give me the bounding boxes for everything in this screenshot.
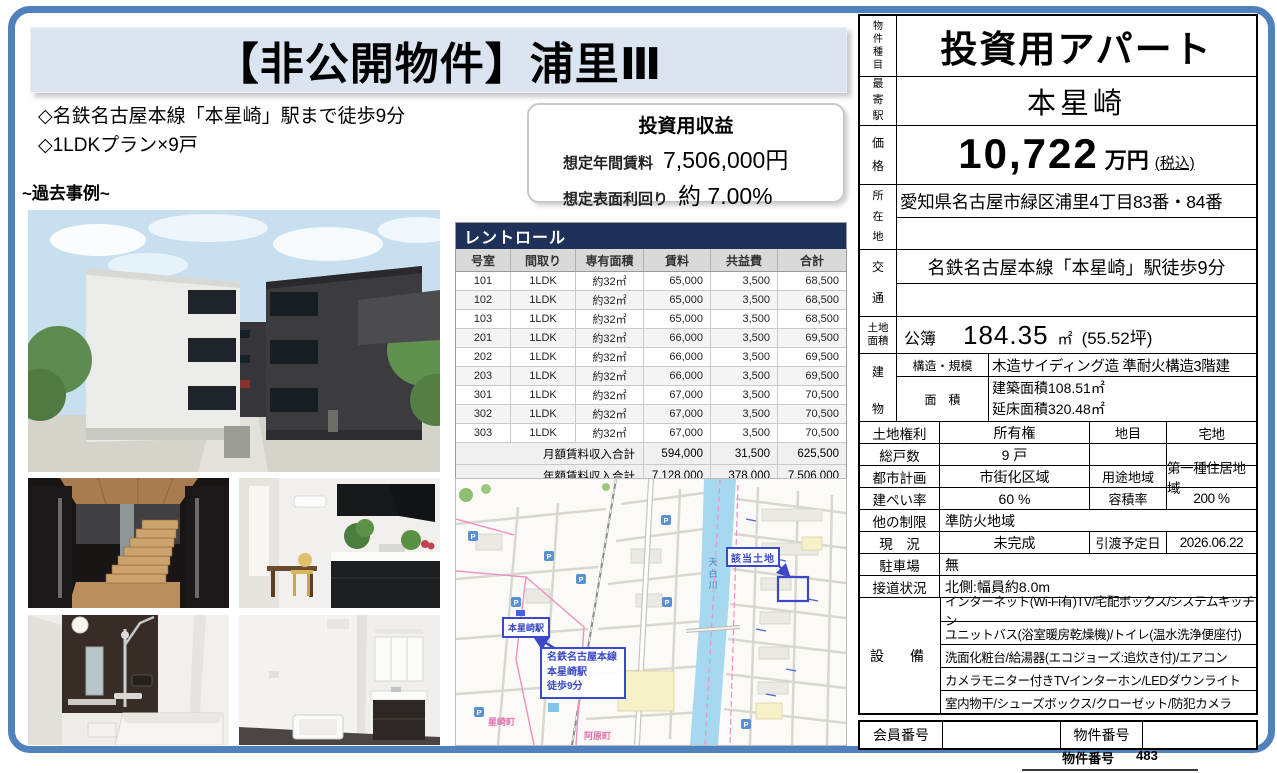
parking-icon: P xyxy=(576,574,586,584)
rent-roll-row: 302 1LDK 約32㎡ 67,000 3,500 70,500 xyxy=(456,405,846,424)
property-number-label: 物件番号 xyxy=(1060,722,1142,748)
building-row: 建物 構造・規模 木造サイディング造 準耐火構造3階建 面 積 建築面積108.… xyxy=(860,353,1256,421)
rent-roll-rows: 101 1LDK 約32㎡ 65,000 3,500 68,500 102 1L… xyxy=(456,272,846,443)
parking-icon: P xyxy=(741,719,751,729)
past-example-label: ~過去事例~ xyxy=(22,179,110,204)
rent-roll-table: レントロール 号室 間取り 専有面積 賃料 共益費 合計 101 1LDK 約3… xyxy=(455,222,847,487)
route-line-1: 名鉄名古屋本線 xyxy=(547,651,617,666)
land-rights-row: 土地権利 所有権 地目 宅地 xyxy=(860,421,1256,443)
rent-roll-row: 203 1LDK 約32㎡ 66,000 3,500 69,500 xyxy=(456,367,846,386)
yield-value: 約 7.00% xyxy=(678,177,773,211)
location-row: 所在地 愛知県名古屋市緑区浦里4丁目83番・84番 xyxy=(860,184,1256,249)
building-label: 建物 xyxy=(872,354,884,428)
rent-roll-row: 102 1LDK 約32㎡ 65,000 3,500 68,500 xyxy=(456,291,846,310)
price-unit: 万円 xyxy=(1105,143,1149,175)
equipment-line: カメラモニター付きTVインターホン/LEDダウンライト xyxy=(941,667,1256,690)
member-number-row: 会員番号 物件番号 xyxy=(858,720,1258,750)
location-map: 本星崎駅 該当土地 名鉄名古屋本線 本星崎駅 徒歩9分 天白川 星崎町 阿原町 … xyxy=(455,478,847,746)
feature-bullets: ◇名鉄名古屋本線「本星崎」駅まで徒歩9分 ◇1LDKプラン×9戸 xyxy=(38,102,405,161)
annual-rent-label: 想定年間賃料 xyxy=(563,152,653,173)
land-area-value: 184.35 xyxy=(963,320,1049,351)
transport-blank xyxy=(897,284,1256,316)
bathroom-photo xyxy=(28,615,229,745)
footer-property-number-value: 483 xyxy=(1136,748,1158,767)
title-banner: 【非公開物件】浦里Ⅲ xyxy=(30,27,847,93)
equipment-label: 設 備 xyxy=(860,598,941,713)
rent-roll-row: 202 1LDK 約32㎡ 66,000 3,500 69,500 xyxy=(456,348,846,367)
land-area-row: 土地面積 公簿 184.35 ㎡ (55.52坪) xyxy=(860,316,1256,353)
rent-roll-row: 103 1LDK 約32㎡ 65,000 3,500 68,500 xyxy=(456,310,846,329)
annual-rent-value: 7,506,000円 xyxy=(663,141,788,175)
parking-icon: P xyxy=(544,551,554,561)
equipment-line: 洗面化粧台/給湯器(エコジョーズ:追炊き付)/エアコン xyxy=(941,644,1256,667)
parking-icon: P xyxy=(468,531,478,541)
property-number-value xyxy=(1142,722,1256,748)
price-value: 10,722 xyxy=(958,130,1098,178)
feature-bullet-1: ◇名鉄名古屋本線「本星崎」駅まで徒歩9分 xyxy=(38,102,405,131)
route-line-3: 徒歩9分 xyxy=(547,680,583,695)
parking-icon: P xyxy=(661,515,671,525)
land-registry-label: 公簿 xyxy=(904,325,936,349)
col-rent: 賃料 xyxy=(644,249,711,271)
nearest-station-row: 最寄駅 本星崎 xyxy=(860,76,1256,125)
col-area: 専有面積 xyxy=(576,249,644,271)
building-area-label: 面 積 xyxy=(897,377,989,421)
subject-land-label: 該当土地 xyxy=(726,547,780,567)
member-number-value xyxy=(942,722,1060,748)
footer-property-number: 物件番号 483 xyxy=(1022,748,1198,771)
other-restrictions-row: 他の制限 準防火地域 xyxy=(860,509,1256,531)
location-blank xyxy=(897,218,1256,249)
parking-row: 駐車場 無 xyxy=(860,553,1256,575)
price-label: 価格 xyxy=(872,132,884,179)
flyer-page: 【非公開物件】浦里Ⅲ ◇名鉄名古屋本線「本星崎」駅まで徒歩9分 ◇1LDKプラン… xyxy=(0,0,1277,773)
current-status-row: 現 況 未完成 引渡予定日 2026.06.22 xyxy=(860,531,1256,553)
col-layout: 間取り xyxy=(511,249,576,271)
equipment-lines: インターネット(Wi-Fi有)TV/宅配ボックス/システムキッチンユニットバス(… xyxy=(941,598,1256,713)
transport-row: 交通 名鉄名古屋本線「本星崎」駅徒歩9分 xyxy=(860,249,1256,316)
river-label: 天白川 xyxy=(708,557,718,592)
price-row: 価格 10,722 万円 (税込) xyxy=(860,125,1256,184)
rent-roll-row: 301 1LDK 約32㎡ 67,000 3,500 70,500 xyxy=(456,386,846,405)
monthly-total-row: 月額賃料収入合計 594,000 31,500 625,500 xyxy=(456,443,846,465)
income-box-title: 投資用収益 xyxy=(529,111,843,138)
property-type-label: 物件種目 xyxy=(873,20,883,73)
equipment-line: インターネット(Wi-Fi有)TV/宅配ボックス/システムキッチン xyxy=(941,598,1256,621)
transport-label: 交通 xyxy=(872,252,884,313)
feature-bullet-2: ◇1LDKプラン×9戸 xyxy=(38,131,405,160)
route-note-box: 名鉄名古屋本線 本星崎駅 徒歩9分 xyxy=(540,647,626,699)
equipment-row: 設 備 インターネット(Wi-Fi有)TV/宅配ボックス/システムキッチンユニッ… xyxy=(860,597,1256,713)
kitchen-photo xyxy=(239,478,440,608)
price-tax-note: (税込) xyxy=(1155,152,1195,173)
property-spec-panel: 物件種目 投資用アパート 最寄駅 本星崎 価格 10,722 万円 (税込) 所… xyxy=(858,14,1258,750)
structure-value: 木造サイディング造 準耐火構造3階建 xyxy=(989,354,1256,376)
rent-roll-title: レントロール xyxy=(456,223,846,249)
building-area-line1: 建築面積108.51㎡ xyxy=(992,378,1256,399)
property-type-row: 物件種目 投資用アパート xyxy=(860,16,1256,76)
col-room: 号室 xyxy=(456,249,511,271)
equipment-line: ユニットバス(浴室暖房乾燥機)/トイレ(温水洗浄便座付) xyxy=(941,621,1256,644)
rent-roll-row: 101 1LDK 約32㎡ 65,000 3,500 68,500 xyxy=(456,272,846,291)
land-area-tsubo: (55.52坪) xyxy=(1082,324,1153,349)
structure-label: 構造・規模 xyxy=(897,354,989,376)
parking-icon: P xyxy=(474,707,484,717)
exterior-photo xyxy=(28,210,440,472)
col-total: 合計 xyxy=(778,249,846,271)
coverage-ratio-row: 建ぺい率 60 % 容積率 200 % xyxy=(860,487,1256,509)
page-title: 【非公開物件】浦里Ⅲ xyxy=(215,28,663,92)
building-area-line2: 延床面積320.48㎡ xyxy=(992,399,1256,420)
washroom-vanity-photo xyxy=(239,615,440,745)
member-number-label: 会員番号 xyxy=(860,722,942,748)
entrance-stairs-photo xyxy=(28,478,229,608)
transport-value: 名鉄名古屋本線「本星崎」駅徒歩9分 xyxy=(897,250,1256,284)
rent-roll-row: 303 1LDK 約32㎡ 67,000 3,500 70,500 xyxy=(456,424,846,443)
rent-roll-row: 201 1LDK 約32㎡ 66,000 3,500 69,500 xyxy=(456,329,846,348)
col-fee: 共益費 xyxy=(711,249,778,271)
equipment-line: 室内物干/シューズボックス/クローゼット/防犯カメラ xyxy=(941,690,1256,713)
property-type-value: 投資用アパート xyxy=(897,16,1256,76)
investment-income-box: 投資用収益 想定年間賃料 7,506,000円 想定表面利回り 約 7.00% xyxy=(527,103,845,203)
nearest-station-label: 最寄駅 xyxy=(873,77,884,125)
footer-property-number-label: 物件番号 xyxy=(1062,748,1114,767)
route-line-2: 本星崎駅 xyxy=(547,666,587,681)
yield-label: 想定表面利回り xyxy=(563,188,668,209)
town-label-hoshizaki: 星崎町 xyxy=(488,715,515,728)
parking-icon: P xyxy=(511,597,521,607)
nearest-station-value: 本星崎 xyxy=(897,77,1256,125)
city-planning-row: 都市計画 市街化区域 用途地域 第一種住居地域 xyxy=(860,465,1256,487)
land-area-unit: ㎡ xyxy=(1058,328,1073,349)
location-value: 愛知県名古屋市緑区浦里4丁目83番・84番 xyxy=(897,185,1256,218)
parking-icon: P xyxy=(662,597,672,607)
location-label: 所在地 xyxy=(873,186,884,247)
land-area-label: 土地面積 xyxy=(866,322,889,348)
town-label-ahara: 阿原町 xyxy=(584,729,611,742)
rent-roll-header: 号室 間取り 専有面積 賃料 共益費 合計 xyxy=(456,249,846,272)
station-map-label: 本星崎駅 xyxy=(502,617,550,638)
map-drawing xyxy=(456,479,846,745)
